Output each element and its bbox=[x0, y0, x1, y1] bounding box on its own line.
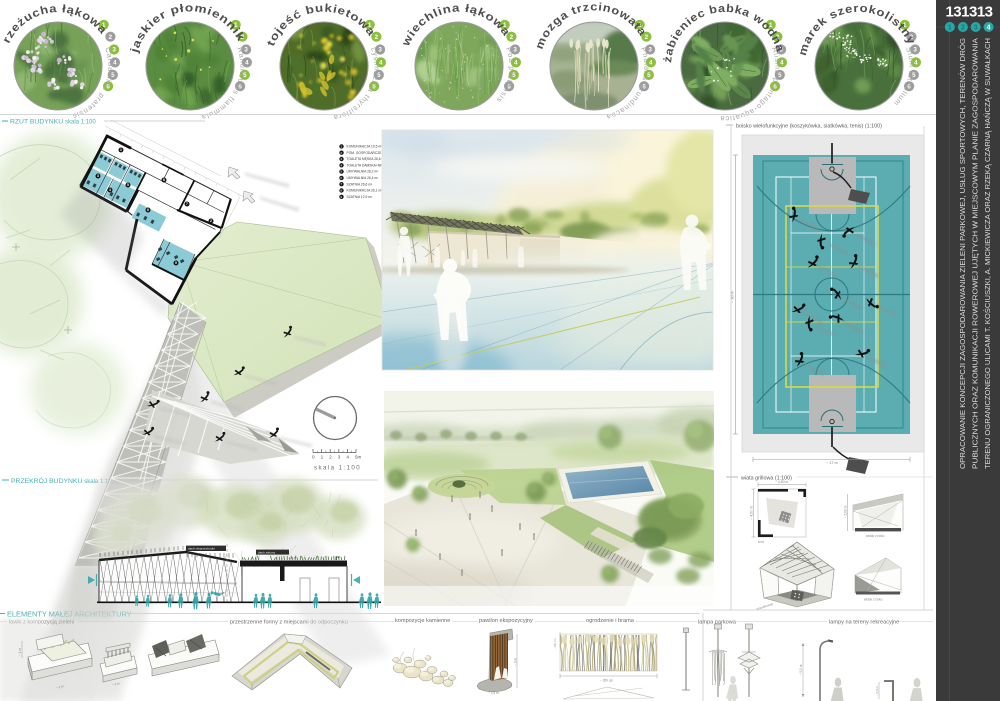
svg-text:~ 4,50 m: ~ 4,50 m bbox=[749, 506, 753, 519]
svg-text:4: 4 bbox=[109, 188, 111, 192]
svg-text:KOMUNIKACJA 26,1 m²: KOMUNIKACJA 26,1 m² bbox=[347, 189, 384, 193]
svg-text:kompozycje kamienne: kompozycje kamienne bbox=[395, 618, 450, 624]
svg-text:5m: 5m bbox=[355, 455, 362, 460]
svg-text:widok z boku: widok z boku bbox=[864, 598, 883, 602]
svg-text:2: 2 bbox=[510, 34, 514, 41]
svg-text:9: 9 bbox=[175, 261, 177, 265]
svg-text:2: 2 bbox=[109, 34, 113, 41]
svg-text:rzut: rzut bbox=[758, 540, 764, 544]
svg-text:RZUT BUDYNKU skala 1:100: RZUT BUDYNKU skala 1:100 bbox=[10, 119, 96, 126]
svg-text:~ 1,5 m: ~ 1,5 m bbox=[488, 691, 499, 695]
svg-text:4: 4 bbox=[346, 455, 349, 460]
svg-text:widok z boku: widok z boku bbox=[866, 534, 885, 538]
svg-text:~ 4,50 m: ~ 4,50 m bbox=[775, 480, 788, 484]
svg-text:SZATNIA 12,9 m²: SZATNIA 12,9 m² bbox=[347, 195, 373, 199]
svg-text:2: 2 bbox=[329, 455, 332, 460]
svg-text:+4,5: +4,5 bbox=[290, 556, 296, 560]
svg-text:UMYWALNIA 26,2 m²: UMYWALNIA 26,2 m² bbox=[347, 170, 380, 174]
svg-text:3: 3 bbox=[974, 25, 978, 32]
svg-text:~ 2,60 m: ~ 2,60 m bbox=[844, 505, 848, 518]
svg-text:2: 2 bbox=[375, 34, 379, 41]
svg-text:ogrodzenie i brama: ogrodzenie i brama bbox=[586, 618, 635, 624]
svg-text:4: 4 bbox=[340, 163, 342, 167]
svg-text:1: 1 bbox=[321, 455, 324, 460]
svg-text:3: 3 bbox=[340, 157, 342, 161]
svg-text:~ 1 m: ~ 1 m bbox=[18, 648, 22, 656]
svg-text:UMYWALNIA 26,4 m²: UMYWALNIA 26,4 m² bbox=[347, 176, 380, 180]
svg-text:~ 30 m: ~ 30 m bbox=[731, 291, 735, 303]
svg-text:8: 8 bbox=[163, 178, 165, 182]
svg-text:pawilon ekspozycyjny: pawilon ekspozycyjny bbox=[479, 618, 533, 624]
svg-text:3: 3 bbox=[338, 455, 341, 460]
svg-text:~ 180 cm: ~ 180 cm bbox=[553, 638, 557, 650]
svg-text:5: 5 bbox=[340, 170, 342, 174]
svg-text:131313: 131313 bbox=[945, 4, 992, 21]
svg-text:dach nieprzechodni: dach nieprzechodni bbox=[188, 547, 215, 551]
svg-text:PUBLICZNYCH ORAZ KOMUNIKACJI R: PUBLICZNYCH ORAZ KOMUNIKACJI ROWEROWEJ U… bbox=[971, 37, 980, 469]
svg-text:SZATNIA 26,6 m²: SZATNIA 26,6 m² bbox=[347, 182, 373, 186]
svg-text:~ 5,5 m: ~ 5,5 m bbox=[799, 664, 803, 675]
svg-text:2: 2 bbox=[340, 151, 342, 155]
svg-text:TOALETA MĘSKA 26,6 m²: TOALETA MĘSKA 26,6 m² bbox=[347, 157, 387, 161]
svg-text:8: 8 bbox=[340, 189, 342, 193]
svg-text:skala 1:100: skala 1:100 bbox=[314, 465, 361, 472]
svg-text:dach zielony: dach zielony bbox=[258, 550, 276, 554]
svg-text:2: 2 bbox=[210, 219, 212, 223]
svg-text:6: 6 bbox=[147, 208, 149, 212]
svg-text:boisko wielofunkcyjne (koszykó: boisko wielofunkcyjne (koszykówka, siatk… bbox=[736, 124, 882, 130]
svg-text:~ 3 m: ~ 3 m bbox=[513, 658, 517, 666]
svg-text:1: 1 bbox=[340, 144, 342, 148]
svg-text:3: 3 bbox=[97, 174, 99, 178]
svg-text:0: 0 bbox=[312, 455, 315, 460]
svg-text:7: 7 bbox=[186, 202, 188, 206]
svg-text:lampy na tereny rekreacyjne: lampy na tereny rekreacyjne bbox=[829, 619, 899, 625]
svg-text:OPRACOWANIE KONCEPCJI ZAGOSPOD: OPRACOWANIE KONCEPCJI ZAGOSPODAROWANIA Z… bbox=[958, 38, 967, 469]
svg-text:2: 2 bbox=[645, 34, 649, 41]
svg-text:KOMUNIKACJA 10,5 m²: KOMUNIKACJA 10,5 m² bbox=[347, 145, 384, 149]
svg-text:7: 7 bbox=[340, 182, 342, 186]
svg-text:4: 4 bbox=[987, 25, 991, 32]
svg-text:~ 17 m: ~ 17 m bbox=[826, 461, 838, 465]
svg-text:1: 1 bbox=[120, 148, 122, 152]
svg-text:~ 350 cm: ~ 350 cm bbox=[600, 679, 614, 683]
svg-text:~ 0,8 m: ~ 0,8 m bbox=[875, 685, 879, 696]
svg-text:6: 6 bbox=[340, 176, 342, 180]
svg-text:9: 9 bbox=[340, 195, 342, 199]
svg-text:5: 5 bbox=[127, 183, 129, 187]
svg-text:1: 1 bbox=[948, 25, 952, 32]
svg-text:2: 2 bbox=[961, 25, 965, 32]
svg-text:TERENU OGRANICZONEGO ULICAMI T: TERENU OGRANICZONEGO ULICAMI T. KOŚCIUSZ… bbox=[983, 38, 992, 469]
